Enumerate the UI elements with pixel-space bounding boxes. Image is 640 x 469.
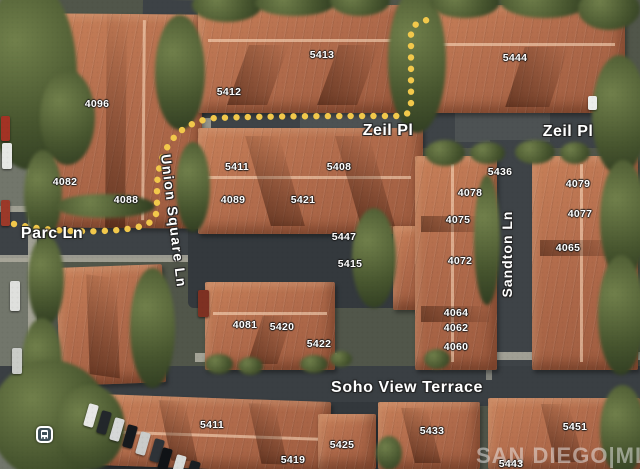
address-label-4078-13: 4078 xyxy=(458,187,483,199)
address-label-5408-7: 5408 xyxy=(327,161,352,173)
address-label-5436-12: 5436 xyxy=(488,166,513,178)
address-label-4060-21: 4060 xyxy=(444,341,469,353)
address-label-5413-1: 5413 xyxy=(310,49,335,61)
address-label-4065-17: 4065 xyxy=(556,242,581,254)
address-label-4082-4: 4082 xyxy=(53,176,78,188)
address-label-4096-0: 4096 xyxy=(85,98,110,110)
address-label-5411-25: 5411 xyxy=(200,419,224,431)
address-label-4072-18: 4072 xyxy=(448,255,473,267)
labels-layer: Zeil PlZeil PlParc LnUnion Square LnSand… xyxy=(0,0,640,469)
satellite-map[interactable]: Zeil PlZeil PlParc LnUnion Square LnSand… xyxy=(0,0,640,469)
address-label-5422-24: 5422 xyxy=(307,338,332,350)
street-label-parc-ln: Parc Ln xyxy=(21,225,83,243)
street-label-sandton-ln: Sandton Ln xyxy=(499,211,515,298)
address-label-4075-15: 4075 xyxy=(446,214,471,226)
address-label-5412-2: 5412 xyxy=(217,86,242,98)
address-label-4064-19: 4064 xyxy=(444,307,469,319)
address-label-4079-14: 4079 xyxy=(566,178,591,190)
address-label-4062-20: 4062 xyxy=(444,322,469,334)
address-label-4088-5: 4088 xyxy=(114,194,139,206)
address-label-5433-28: 5433 xyxy=(420,425,445,437)
address-label-5421-9: 5421 xyxy=(291,194,316,206)
address-label-5444-3: 5444 xyxy=(503,52,528,64)
transit-station-icon[interactable] xyxy=(36,426,53,443)
address-label-5425-27: 5425 xyxy=(330,439,355,451)
street-label-soho-view-terrace: Soho View Terrace xyxy=(331,379,483,397)
address-label-5420-23: 5420 xyxy=(270,321,295,333)
street-label-zeil-pl-east: Zeil Pl xyxy=(543,123,594,141)
address-label-5447-10: 5447 xyxy=(332,231,357,243)
address-label-4081-22: 4081 xyxy=(233,319,258,331)
bus-glyph xyxy=(41,430,48,439)
street-label-union-square-ln: Union Square Ln xyxy=(158,153,190,288)
address-label-5419-26: 5419 xyxy=(281,454,306,466)
address-label-5451-30: 5451 xyxy=(563,421,588,433)
watermark: SAN DIEGO|MLS xyxy=(476,443,640,469)
address-label-5415-11: 5415 xyxy=(338,258,363,270)
address-label-4077-16: 4077 xyxy=(568,208,593,220)
address-label-5411-6: 5411 xyxy=(225,161,249,173)
street-label-zeil-pl-west: Zeil Pl xyxy=(363,122,414,140)
address-label-4089-8: 4089 xyxy=(221,194,246,206)
